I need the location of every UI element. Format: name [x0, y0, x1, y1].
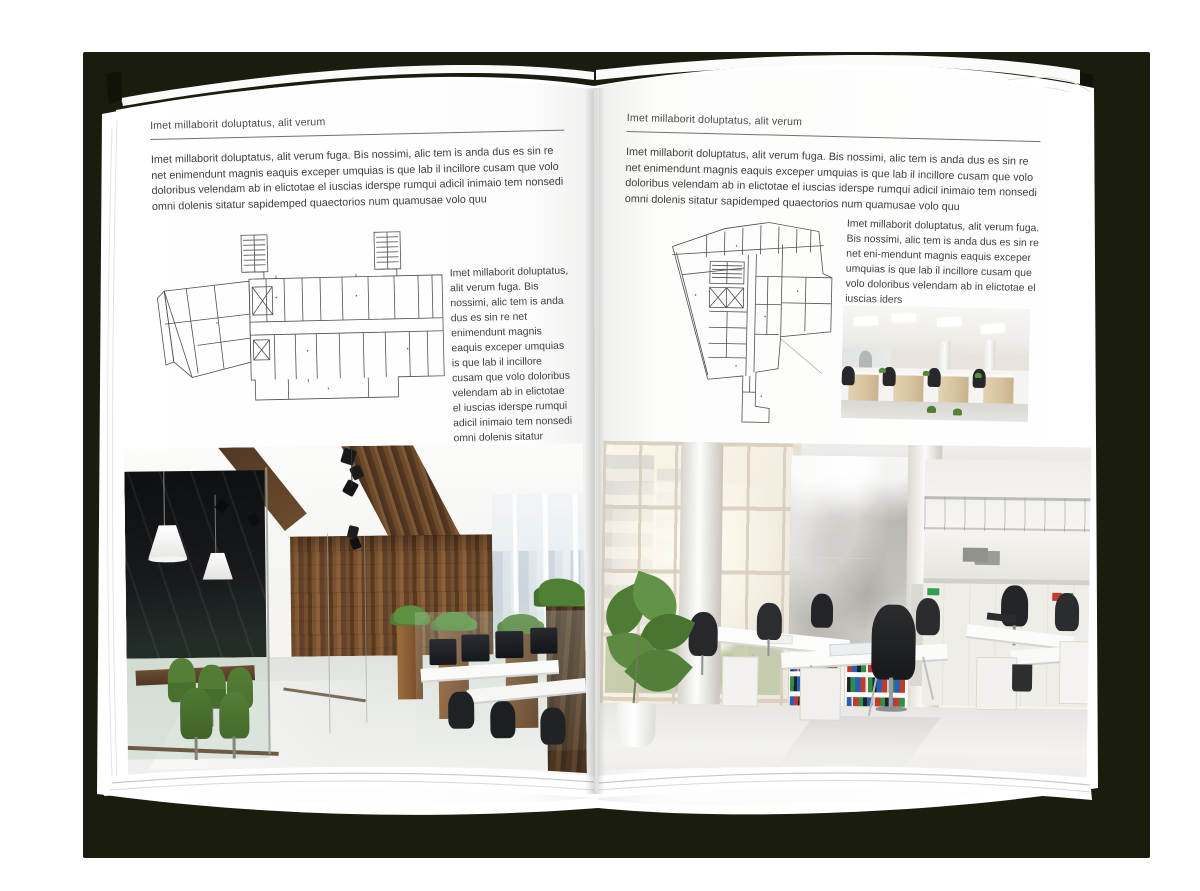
spiral-stair	[859, 351, 872, 369]
black-chair-2	[490, 701, 516, 738]
right-pedestal	[975, 657, 1017, 711]
brochure-mockup-stage: Imet millaborit doluptatus, alit verum I…	[0, 0, 1200, 891]
blueprint-on-desk	[830, 642, 877, 657]
chair-base-4	[875, 706, 907, 711]
waste-bin	[1012, 664, 1032, 691]
chair-stem-2	[767, 638, 770, 655]
left-page-text-block: Imet millaborit doluptatus, alit verum I…	[150, 111, 566, 216]
monitor	[429, 638, 457, 665]
left-page-header-rule	[150, 130, 564, 140]
desk-plants	[879, 368, 886, 373]
wood-cabinet-4	[983, 374, 1014, 407]
right-page-intro: Imet millaborit doluptatus, alit verum f…	[625, 145, 1040, 218]
right-page-header-rule	[627, 131, 1041, 142]
wall-spotlight-glow	[790, 455, 911, 559]
right-floor-plan	[645, 214, 845, 428]
green-chair-4	[180, 688, 213, 738]
chair-stem-5	[233, 736, 236, 758]
desk-pedestal	[722, 656, 759, 706]
office-chair-7	[1055, 593, 1080, 631]
light-panel-2	[891, 313, 916, 323]
desk-chair-4	[972, 369, 985, 388]
light-panel-4	[981, 323, 1006, 334]
monitor-2	[461, 635, 489, 662]
glass-rail-posts	[924, 496, 1090, 532]
left-floor-plan	[155, 228, 447, 418]
floor-plant	[927, 406, 936, 413]
monitor-3	[496, 631, 524, 658]
exit-sign	[927, 588, 939, 596]
right-page-text-block: Imet millaborit doluptatus, alit verum I…	[625, 112, 1041, 218]
wood-cabinet-2	[894, 372, 925, 405]
office-chair-5	[915, 598, 940, 636]
glass-reflection	[124, 470, 266, 659]
office-chair-4-foreground	[871, 604, 916, 679]
black-chair-3	[540, 707, 566, 744]
desk-pedestal-2	[800, 668, 842, 722]
chair-stem	[701, 654, 704, 674]
vent-grille	[963, 548, 988, 562]
light-panel	[854, 316, 879, 326]
light-panel-3	[936, 317, 961, 327]
right-office-photo	[599, 441, 1092, 788]
left-office-photo	[124, 443, 587, 783]
chair-stem-4	[195, 737, 198, 760]
left-page-intro: Imet millaborit doluptatus, alit verum f…	[151, 144, 566, 216]
chair-stem-4	[889, 678, 893, 709]
right-plan-caption: Imet millaborit doluptatus, alit verum f…	[845, 218, 1043, 313]
small-office-photo	[841, 305, 1030, 422]
wood-cabinet-3	[938, 373, 969, 406]
office-chair-2	[757, 603, 782, 641]
office-chair-3	[811, 593, 833, 627]
plant-pot	[616, 703, 656, 748]
office-chair	[688, 612, 718, 657]
desk-chair	[842, 366, 855, 385]
desk-chair-3	[928, 368, 941, 387]
black-chair	[448, 692, 474, 729]
monitor-4	[530, 627, 558, 654]
right-pedestal-2	[1058, 641, 1090, 705]
green-chair-5	[219, 691, 250, 738]
